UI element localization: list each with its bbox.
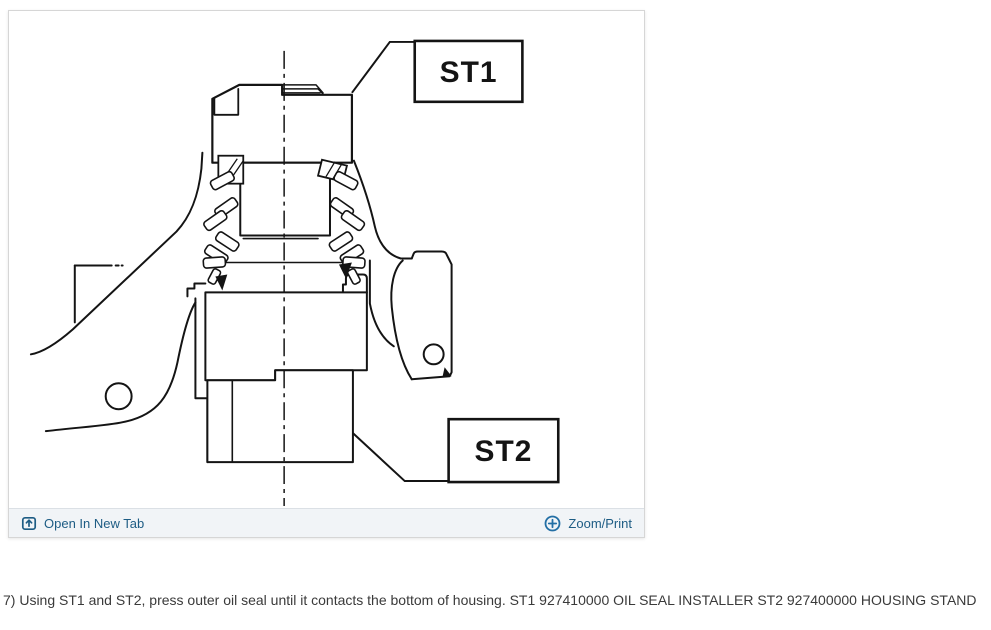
st2-label-text: ST2 <box>475 435 533 468</box>
st1-label-text: ST1 <box>440 56 498 89</box>
zoom-plus-icon <box>544 515 561 532</box>
st2-label: ST2 <box>449 419 559 482</box>
left-bearing-rollers <box>203 171 240 285</box>
step-caption: 7) Using ST1 and ST2, press outer oil se… <box>3 592 988 608</box>
technical-diagram: ST1 ST2 <box>9 11 644 508</box>
viewer-toolbar: Open In New Tab Zoom/Print <box>9 508 644 537</box>
open-in-new-tab-button[interactable]: Open In New Tab <box>21 515 144 531</box>
open-in-new-tab-label: Open In New Tab <box>44 517 144 530</box>
st1-leader-line <box>352 42 416 93</box>
st2-housing-stand <box>205 292 366 462</box>
zoom-print-button[interactable]: Zoom/Print <box>544 515 632 532</box>
open-in-new-tab-icon <box>21 515 37 531</box>
st1-label: ST1 <box>415 41 523 102</box>
image-viewer-panel: ST1 ST2 Open In New Tab <box>8 10 645 538</box>
st2-leader-line <box>353 433 449 481</box>
oil-seal-press-diagram: ST1 ST2 <box>9 11 644 508</box>
ear-corner-wedge <box>443 367 452 376</box>
zoom-print-label: Zoom/Print <box>568 517 632 530</box>
